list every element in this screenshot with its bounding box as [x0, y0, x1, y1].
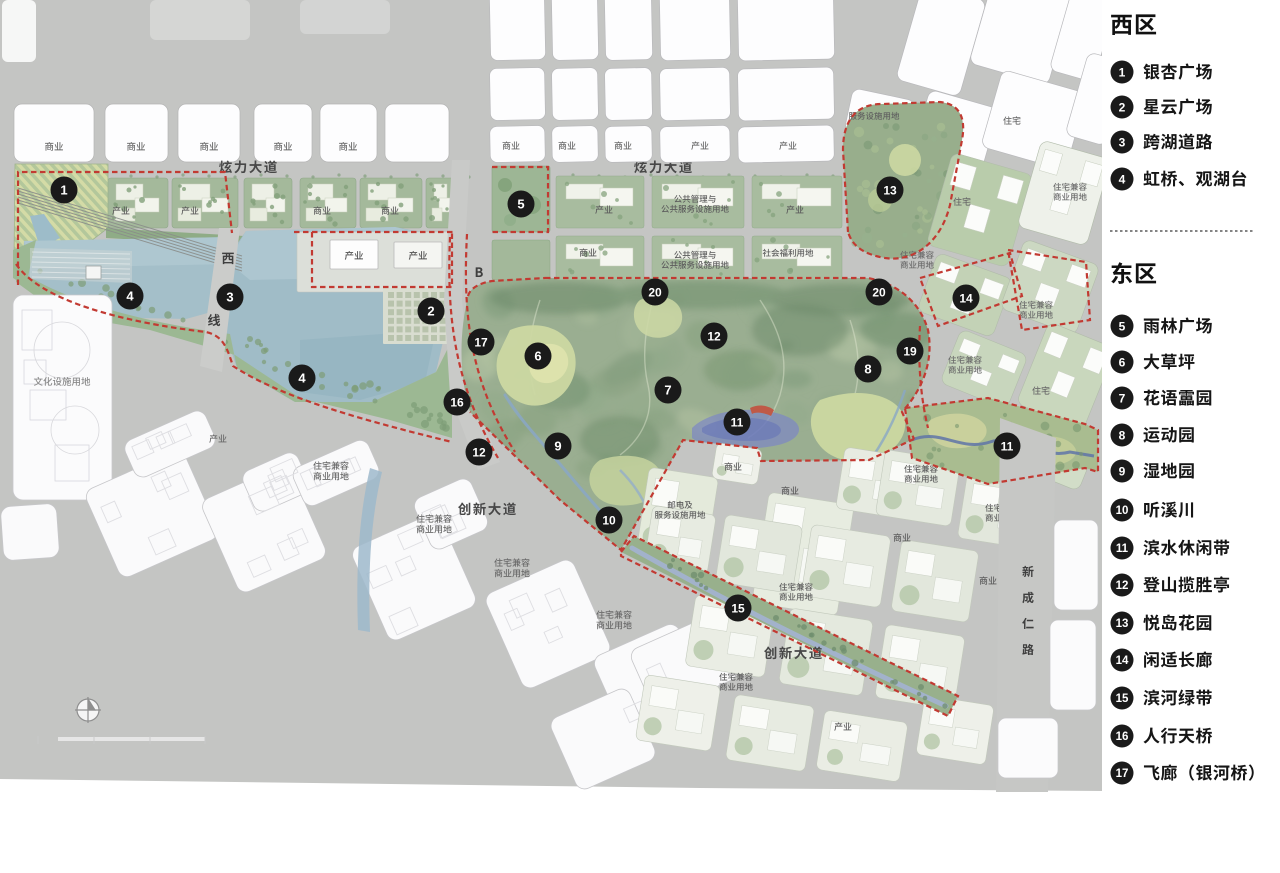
svg-text:8: 8 — [1119, 428, 1126, 442]
svg-text:5: 5 — [517, 197, 524, 212]
svg-text:7: 7 — [664, 383, 671, 398]
svg-text:15: 15 — [1116, 693, 1129, 705]
svg-text:14: 14 — [959, 291, 973, 305]
svg-text:3: 3 — [226, 290, 233, 305]
svg-text:17: 17 — [474, 335, 488, 349]
svg-text:4: 4 — [298, 371, 306, 386]
svg-text:3: 3 — [1119, 135, 1126, 149]
svg-text:12: 12 — [1116, 580, 1129, 592]
svg-text:12: 12 — [707, 329, 721, 343]
svg-text:2: 2 — [1119, 100, 1126, 114]
svg-text:4: 4 — [1119, 172, 1126, 186]
svg-text:20: 20 — [648, 285, 662, 299]
svg-text:12: 12 — [472, 445, 486, 459]
svg-text:1: 1 — [60, 183, 67, 198]
svg-text:6: 6 — [1119, 355, 1126, 369]
svg-text:4: 4 — [126, 289, 134, 304]
svg-text:11: 11 — [1116, 543, 1129, 555]
svg-text:13: 13 — [1116, 618, 1129, 630]
svg-text:13: 13 — [883, 183, 897, 197]
svg-text:8: 8 — [864, 362, 871, 377]
svg-text:16: 16 — [1116, 731, 1129, 743]
svg-text:10: 10 — [1116, 505, 1129, 517]
svg-text:14: 14 — [1116, 655, 1129, 667]
svg-text:17: 17 — [1116, 768, 1129, 780]
svg-text:6: 6 — [534, 349, 541, 364]
svg-text:1: 1 — [1119, 65, 1126, 79]
svg-text:11: 11 — [1001, 439, 1014, 453]
svg-text:16: 16 — [450, 395, 464, 409]
svg-text:7: 7 — [1119, 391, 1126, 405]
svg-text:5: 5 — [1119, 319, 1126, 333]
svg-text:15: 15 — [731, 601, 745, 615]
svg-text:9: 9 — [1119, 464, 1126, 478]
svg-text:10: 10 — [602, 513, 616, 527]
svg-text:9: 9 — [554, 439, 561, 454]
svg-text:20: 20 — [872, 285, 886, 299]
svg-text:19: 19 — [903, 344, 917, 358]
svg-text:11: 11 — [731, 415, 744, 429]
svg-text:2: 2 — [427, 304, 434, 319]
